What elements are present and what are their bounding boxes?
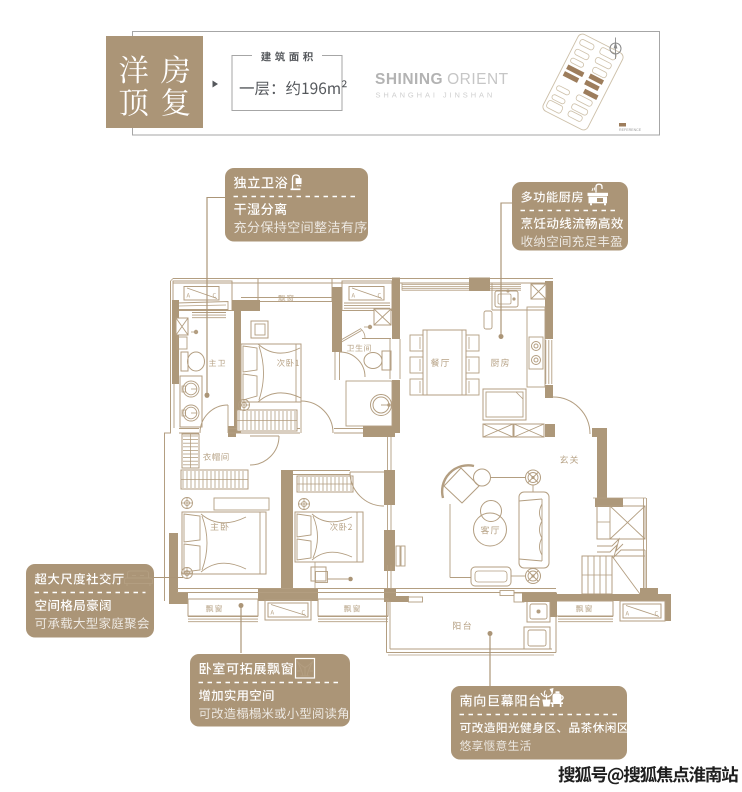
svg-text:SHANGHAI JINSHAN: SHANGHAI JINSHAN (376, 91, 496, 100)
svg-text:SHININGORIENT: SHININGORIENT (375, 71, 509, 88)
svg-text:REFERENCE: REFERENCE (619, 128, 642, 132)
